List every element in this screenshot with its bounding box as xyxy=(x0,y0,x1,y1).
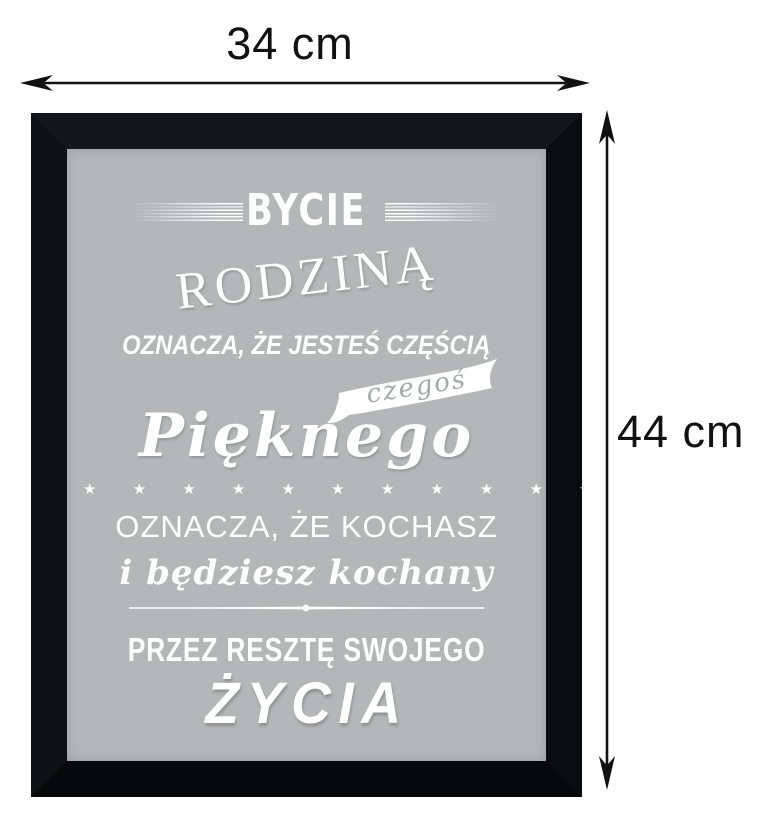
product-image: 34 cm 44 cm BYCIE RODZINĄ OZNACZA, ŻE JE… xyxy=(0,0,776,830)
divider-dot-icon xyxy=(303,605,310,612)
poster-line-rest: PRZEZ RESZTĘ SWOJEGO xyxy=(67,632,546,668)
poster-line-life-text: ŻYCIA xyxy=(205,671,408,737)
poster-line-life: ŻYCIA xyxy=(67,671,546,737)
poster-line-loved: i będziesz kochany xyxy=(67,553,546,593)
width-dimension-label: 34 cm xyxy=(0,18,580,70)
poster-line-family: RODZINĄ xyxy=(65,218,548,338)
width-arrow-icon xyxy=(20,75,590,91)
poster-line-beautiful: Pięknego xyxy=(67,399,546,473)
height-dimension-label: 44 cm xyxy=(617,406,745,458)
poster-line-means-part: OZNACZA, ŻE JESTEŚ CZĘŚCIĄ xyxy=(67,331,546,359)
divider-line xyxy=(119,604,494,612)
poster-frame: BYCIE RODZINĄ OZNACZA, ŻE JESTEŚ CZĘŚCIĄ… xyxy=(31,113,582,797)
poster-line-means-love: OZNACZA, ŻE KOCHASZ xyxy=(67,509,546,545)
stars-row: ★ ★ ★ ★ ★ ★ ★ ★ ★ ★ ★ ★ xyxy=(67,481,546,499)
height-arrow-icon xyxy=(599,110,615,790)
poster-line-being-text: BYCIE xyxy=(246,189,366,233)
poster-canvas: BYCIE RODZINĄ OZNACZA, ŻE JESTEŚ CZĘŚCIĄ… xyxy=(67,149,546,761)
poster-line-means-part-text: OZNACZA, ŻE JESTEŚ CZĘŚCIĄ xyxy=(122,331,490,359)
poster-line-rest-text: PRZEZ RESZTĘ SWOJEGO xyxy=(128,632,486,668)
